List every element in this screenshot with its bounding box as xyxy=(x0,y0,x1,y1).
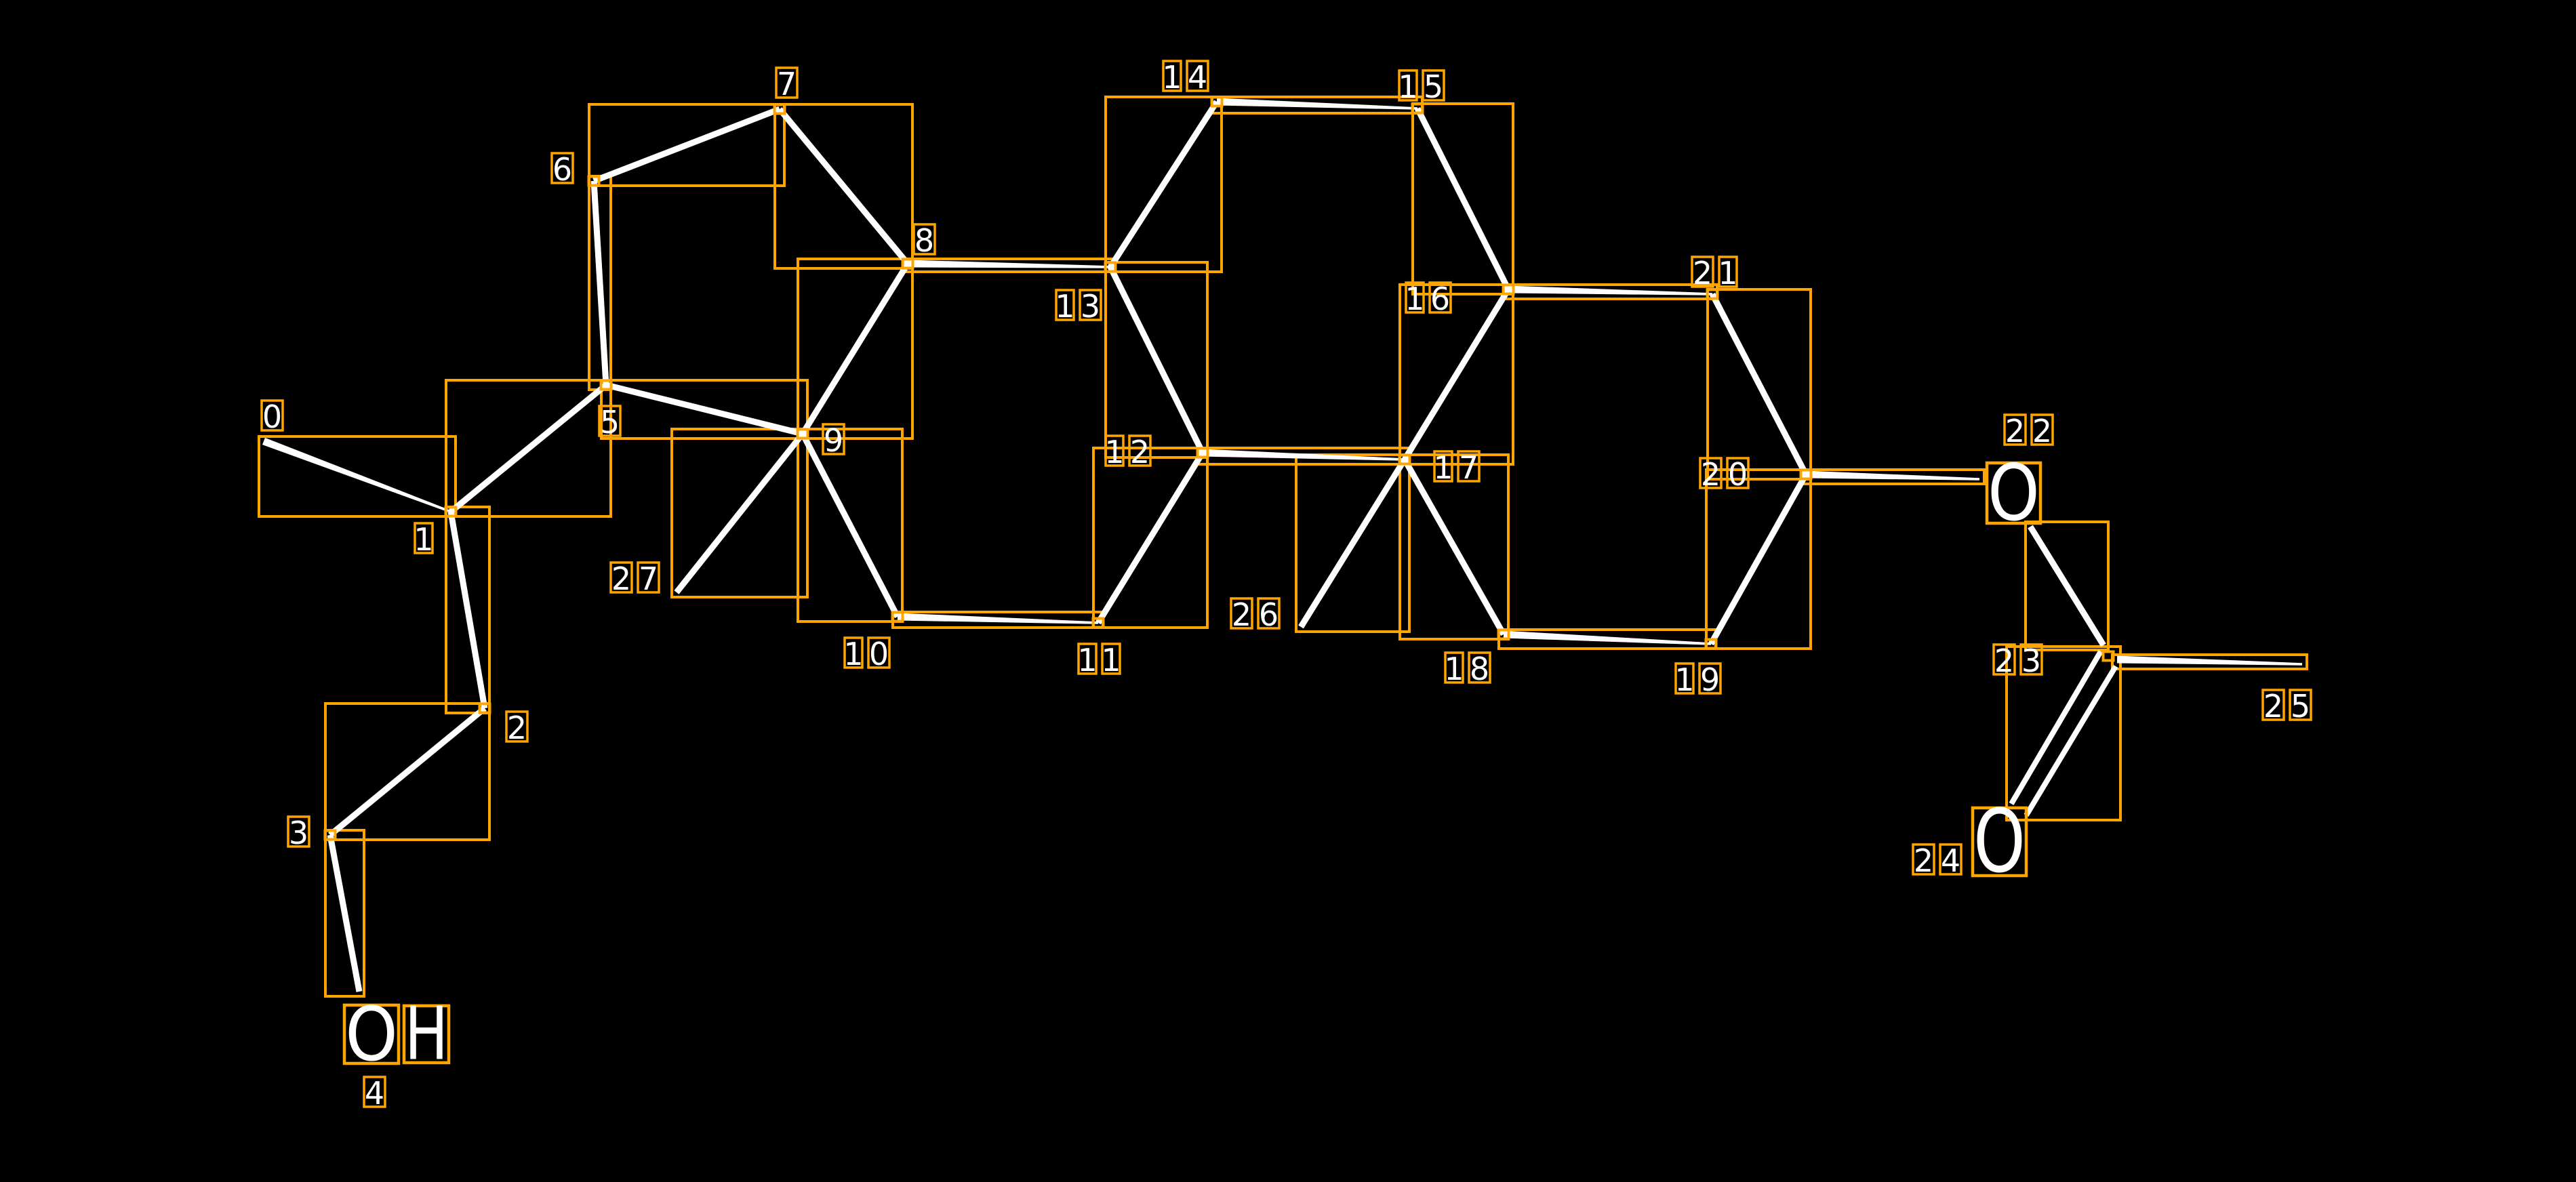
atom-label-21-digit-0: 2 xyxy=(1693,255,1712,291)
molecule-canvas: OHOO012345678910111213141516171819202122… xyxy=(0,0,2576,1182)
atom-label-18-digit-0: 1 xyxy=(1444,651,1464,687)
atom-label-17-digit-0: 1 xyxy=(1433,449,1453,486)
bond-14-15 xyxy=(1217,98,1417,110)
bond-8-9 xyxy=(803,264,908,434)
atom-label-11-digit-0: 1 xyxy=(1077,642,1097,678)
bond-10-11 xyxy=(898,613,1098,624)
bond-17-26 xyxy=(1301,460,1405,627)
atom-label-9-digit-0: 9 xyxy=(824,422,843,459)
atom-label-5-digit-0: 5 xyxy=(600,404,620,441)
bond-9-10 xyxy=(803,434,898,617)
atom-label-16-digit-0: 1 xyxy=(1405,281,1424,317)
atom-label-20-digit-0: 2 xyxy=(1701,456,1720,493)
atom-label-21-digit-1: 1 xyxy=(1718,255,1737,291)
bond-17-18 xyxy=(1405,460,1504,634)
atom-label-16-digit-1: 6 xyxy=(1430,281,1450,317)
bond-18-19 xyxy=(1504,631,1711,645)
atom-label-24-digit-1: 4 xyxy=(1941,842,1960,879)
bond-5-6 xyxy=(594,181,606,385)
atom-label-27-digit-0: 2 xyxy=(611,561,631,597)
bond-11-12 xyxy=(1098,453,1203,623)
bond-13-14 xyxy=(1110,102,1217,267)
atom-label-0-digit-0: 0 xyxy=(262,399,282,435)
bond-7-8 xyxy=(780,109,908,264)
bond-5-9 xyxy=(606,385,803,434)
atom-label-23-digit-0: 2 xyxy=(1994,643,2014,679)
atom-label-11-digit-1: 1 xyxy=(1101,642,1121,678)
atom-label-13-digit-0: 1 xyxy=(1055,288,1074,325)
atom-label-7-digit-0: 7 xyxy=(777,66,797,102)
atom-glyph-4-0: O xyxy=(345,991,398,1078)
bond-16-21 xyxy=(1508,286,1712,295)
atom-label-3-digit-0: 3 xyxy=(289,815,308,851)
atom-label-19-digit-1: 9 xyxy=(1700,661,1720,698)
atom-label-1-digit-0: 1 xyxy=(414,521,433,558)
atom-label-15-digit-0: 1 xyxy=(1398,68,1417,105)
bond-23-24-line2 xyxy=(2026,666,2116,815)
heteroatom-glyphs-layer: OHOO xyxy=(344,448,2040,1078)
atom-label-24-digit-0: 2 xyxy=(1914,842,1933,879)
atom-label-17-digit-1: 7 xyxy=(1459,449,1478,486)
atom-label-20-digit-1: 0 xyxy=(1728,456,1748,493)
bond-23-25 xyxy=(2117,656,2302,666)
bond-1-5 xyxy=(451,385,606,512)
atom-label-23-digit-1: 3 xyxy=(2021,643,2041,679)
atom-label-22-digit-1: 2 xyxy=(2032,413,2052,449)
atom-label-6-digit-0: 6 xyxy=(552,151,572,188)
bond-20-21 xyxy=(1712,294,1806,474)
atom-label-13-digit-1: 3 xyxy=(1081,288,1100,325)
atom-label-4-digit-0: 4 xyxy=(365,1075,384,1112)
bond-1-2 xyxy=(451,512,485,708)
bond-9-27 xyxy=(677,434,803,592)
atom-index-labels-layer: 0123456789101112131415161718192021222324… xyxy=(262,59,2311,1112)
atom-glyph-22-0: O xyxy=(1988,448,2040,538)
atom-label-22-digit-0: 2 xyxy=(2005,413,2025,449)
atom-label-12-digit-1: 2 xyxy=(1130,434,1150,470)
atom-label-14-digit-0: 1 xyxy=(1162,59,1182,96)
bond-19-20 xyxy=(1711,474,1806,644)
atom-label-8-digit-0: 8 xyxy=(914,222,934,259)
atom-label-15-digit-1: 5 xyxy=(1424,68,1443,105)
bond-2-3 xyxy=(330,708,485,835)
bond-8-13 xyxy=(908,260,1110,268)
atom-glyph-24-0: O xyxy=(1973,792,2026,893)
atom-label-12-digit-0: 1 xyxy=(1104,434,1124,470)
atom-label-19-digit-0: 1 xyxy=(1674,661,1694,698)
atom-label-10-digit-1: 0 xyxy=(869,636,889,672)
atom-label-10-digit-0: 1 xyxy=(843,636,863,672)
bond-15-16 xyxy=(1417,108,1508,289)
atom-label-27-digit-1: 7 xyxy=(639,561,658,597)
atom-label-18-digit-1: 8 xyxy=(1470,651,1489,687)
atom-label-26-digit-0: 2 xyxy=(1232,596,1251,633)
bond-22-23 xyxy=(2030,527,2104,645)
bond-20-22 xyxy=(1806,471,1979,481)
annotated-molecule-view: OHOO012345678910111213141516171819202122… xyxy=(0,0,2576,1182)
atom-label-2-digit-0: 2 xyxy=(507,710,527,746)
atom-label-25-digit-0: 2 xyxy=(2263,688,2283,725)
bond-3-4 xyxy=(330,835,359,992)
atom-glyph-4-1: H xyxy=(405,992,448,1077)
bond-6-7 xyxy=(594,109,780,181)
bond-0-1 xyxy=(262,438,451,513)
atom-label-14-digit-1: 4 xyxy=(1188,59,1207,96)
atom-label-26-digit-1: 6 xyxy=(1259,596,1279,633)
bond-12-13 xyxy=(1110,267,1203,453)
atom-label-25-digit-1: 5 xyxy=(2291,688,2310,725)
